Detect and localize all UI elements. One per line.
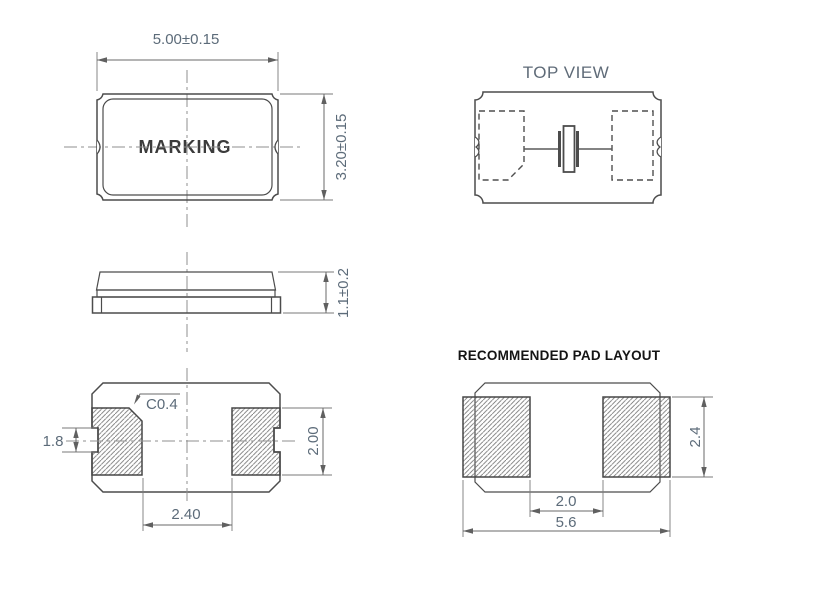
layout-pad-height-dimension-label: 2.4	[687, 427, 704, 448]
front-view: MARKING 5.00±0.15 3.20±0.15	[64, 31, 350, 230]
height-dimension-label: 3.20±0.15	[333, 114, 350, 181]
package-drawing-svg: MARKING 5.00±0.15 3.20±0.15 TOP VIEW	[0, 0, 818, 601]
top-view-left-pad-hidden	[479, 111, 524, 180]
side-seal-band	[97, 290, 275, 297]
overall-dimension-label: 5.6	[556, 514, 577, 531]
thickness-dimension-label: 1.1±0.2	[335, 268, 352, 318]
pad-layout-view: RECOMMENDED PAD LAYOUT 2.0 5.6 2.4	[458, 348, 713, 537]
drawing-sheet: MARKING 5.00±0.15 3.20±0.15 TOP VIEW	[0, 0, 818, 601]
top-view-right-castellation	[657, 137, 661, 157]
chamfer-label: C0.4	[146, 396, 178, 413]
pad-layout-left-pad-hatched	[463, 397, 530, 477]
side-lid	[97, 272, 276, 290]
gap-dimension-label: 2.0	[556, 493, 577, 510]
chamfer-leader-arrow	[134, 395, 141, 405]
pad-height-dimension-label: 2.00	[305, 426, 322, 455]
crystal-body	[564, 126, 575, 172]
pad-gap-dimension-label: 2.40	[171, 506, 200, 523]
side-view: 1.1±0.2	[93, 252, 353, 352]
pad-layout-right-pad-hatched	[603, 397, 670, 477]
top-view-title: TOP VIEW	[523, 63, 610, 82]
castellation-dimension-label: 1.8	[43, 433, 64, 450]
top-view-right-pad-hidden	[612, 111, 653, 180]
crystal-symbol	[524, 126, 612, 172]
width-dimension-label: 5.00±0.15	[153, 31, 220, 48]
front-right-castellation-notch	[275, 140, 278, 154]
top-view: TOP VIEW	[475, 63, 661, 203]
front-left-castellation-notch	[97, 140, 100, 154]
pad-layout-title: RECOMMENDED PAD LAYOUT	[458, 348, 661, 363]
bottom-view: C0.4 1.8 2.00 2.40	[43, 368, 332, 531]
